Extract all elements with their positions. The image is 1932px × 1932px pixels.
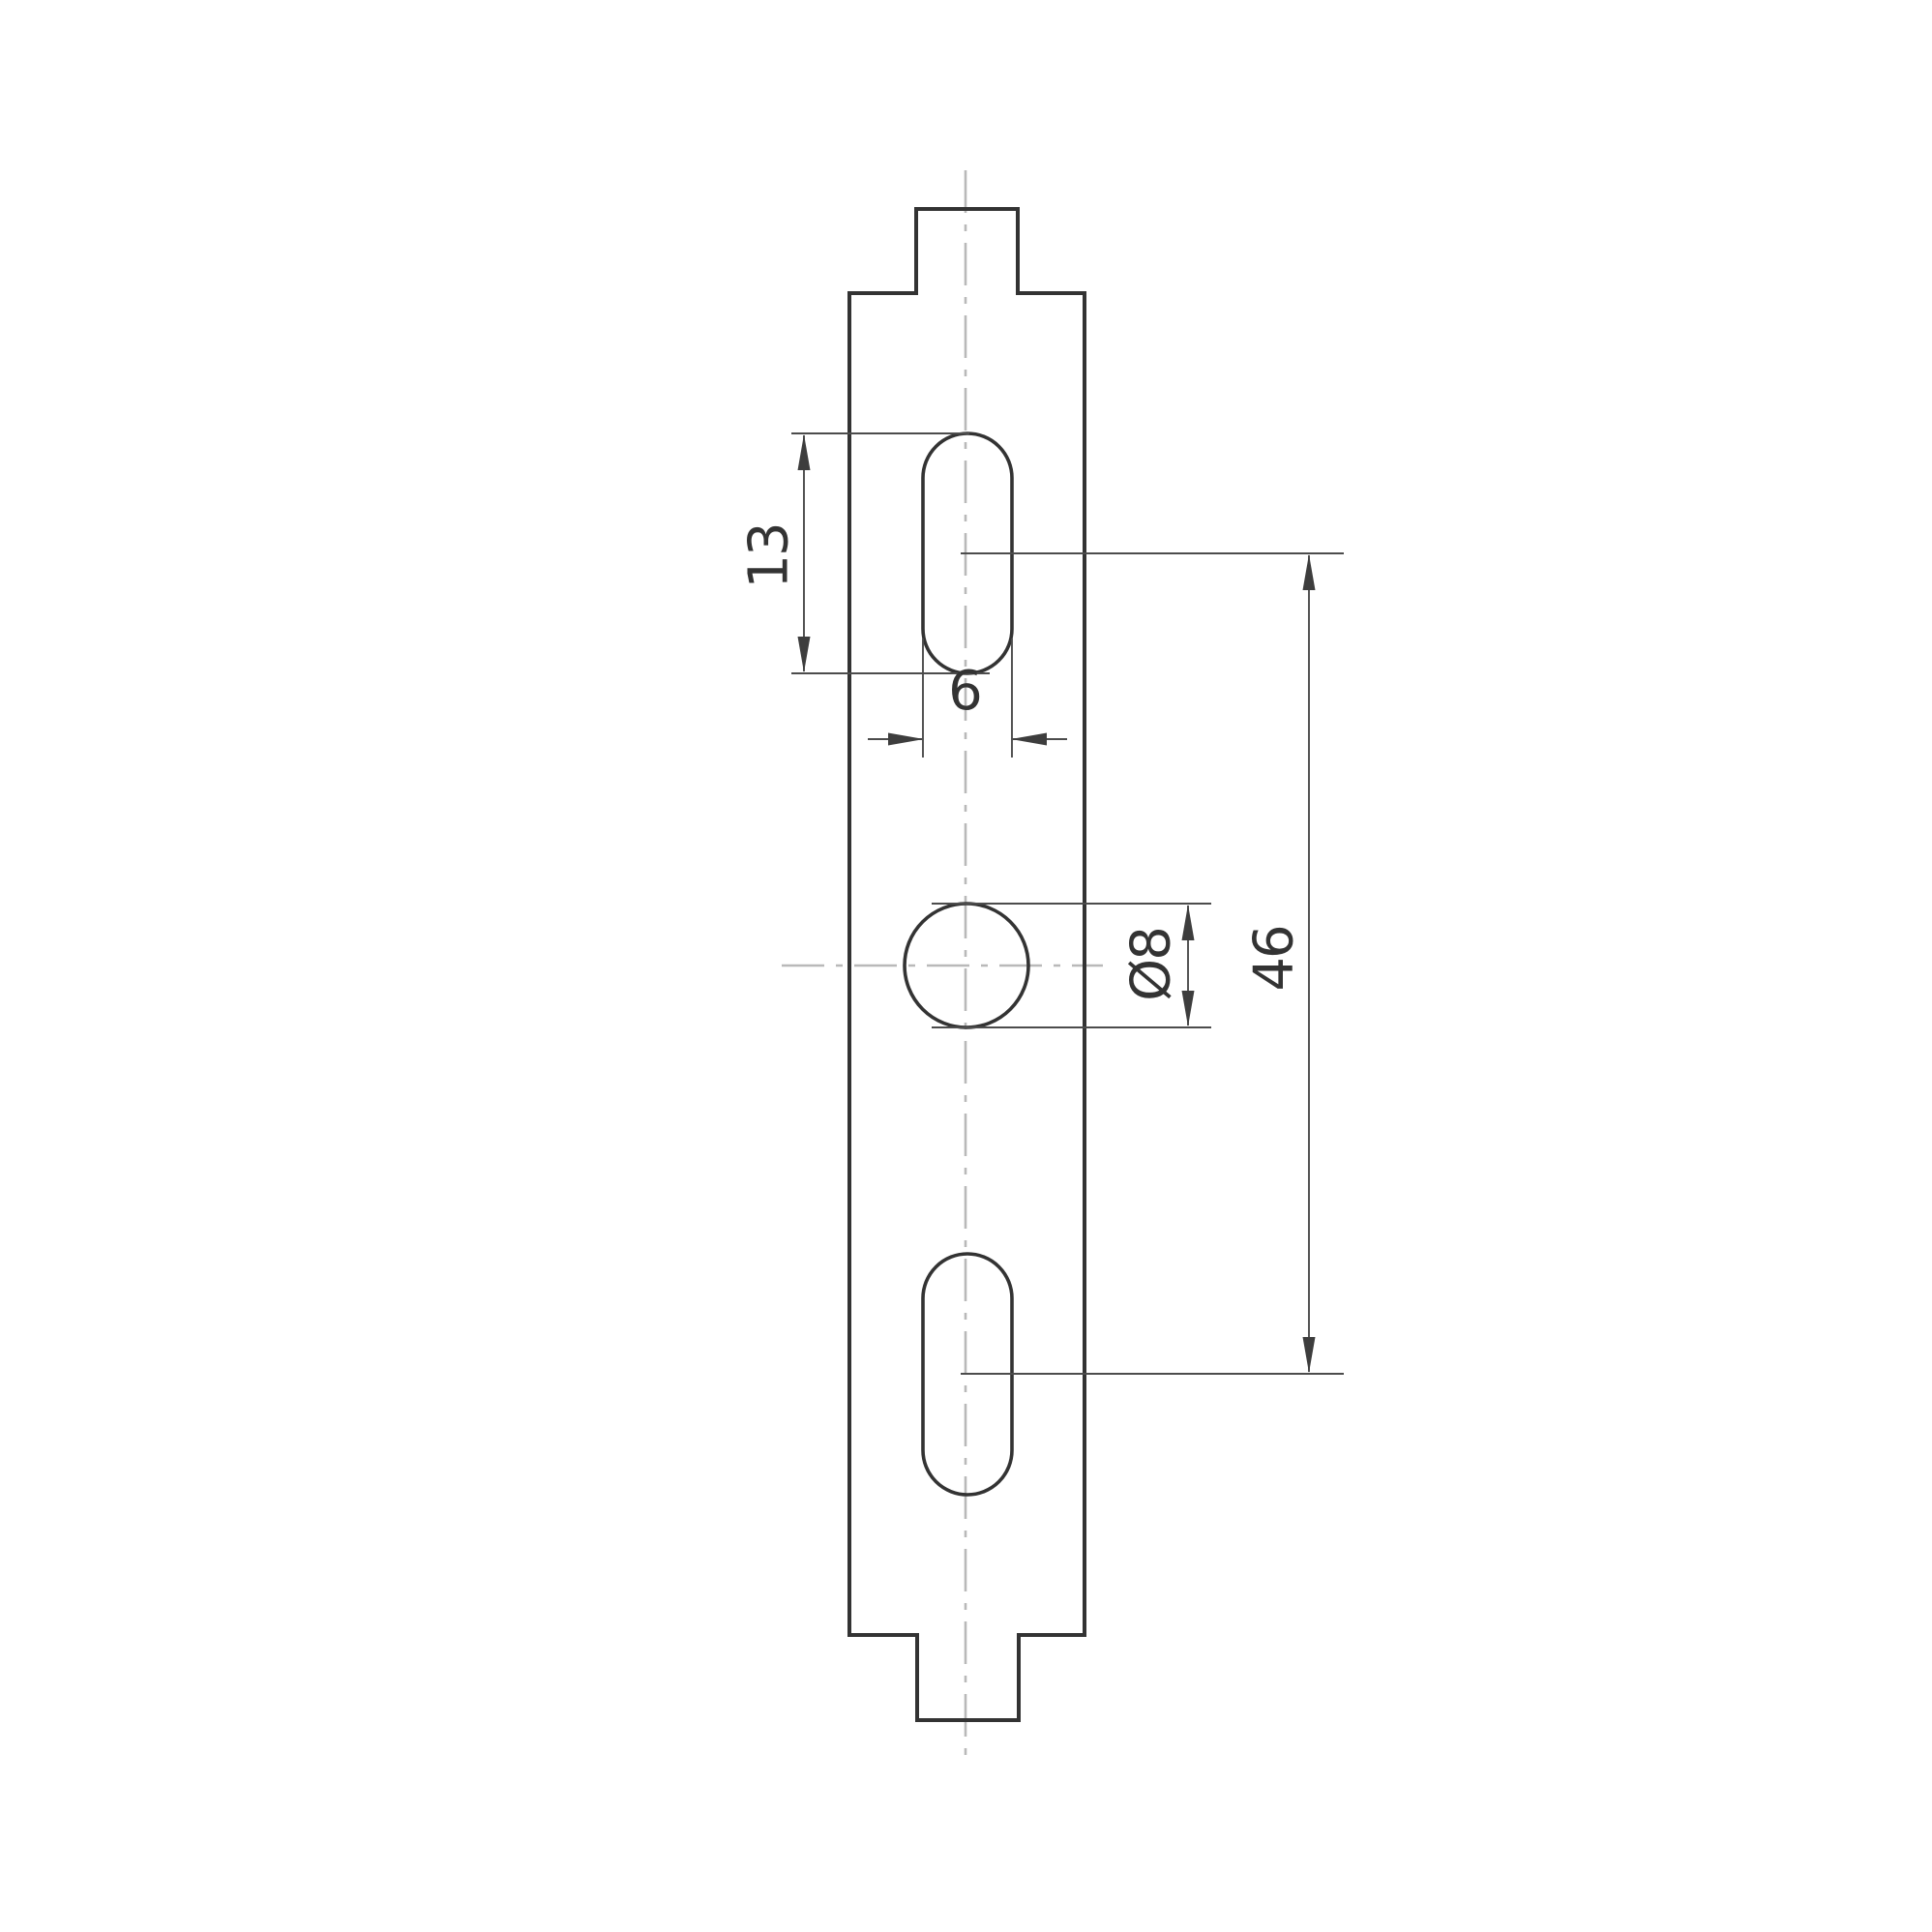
arrowhead-right <box>888 733 924 746</box>
dimension-hole-diameter: Ø8 <box>932 904 1211 1027</box>
arrowhead-down <box>1303 1337 1316 1373</box>
arrowhead-up <box>1182 905 1195 940</box>
dimension-value: 46 <box>1243 926 1306 991</box>
dimension-value: 6 <box>948 660 981 723</box>
dimension-value: 13 <box>738 523 801 588</box>
arrowhead-up <box>1303 554 1316 590</box>
drawing-page: 13 6 Ø8 46 <box>0 0 1932 1932</box>
dimension-slot-width: 6 <box>868 639 1067 758</box>
arrowhead-up <box>798 434 811 470</box>
centerlines <box>782 170 1103 1766</box>
arrowhead-left <box>1011 733 1047 746</box>
technical-drawing-canvas: 13 6 Ø8 46 <box>0 0 1932 1932</box>
arrowhead-down <box>1182 991 1195 1026</box>
dimension-slot-length: 13 <box>738 433 991 673</box>
arrowhead-down <box>798 637 811 672</box>
dimension-value: Ø8 <box>1120 928 1183 1001</box>
